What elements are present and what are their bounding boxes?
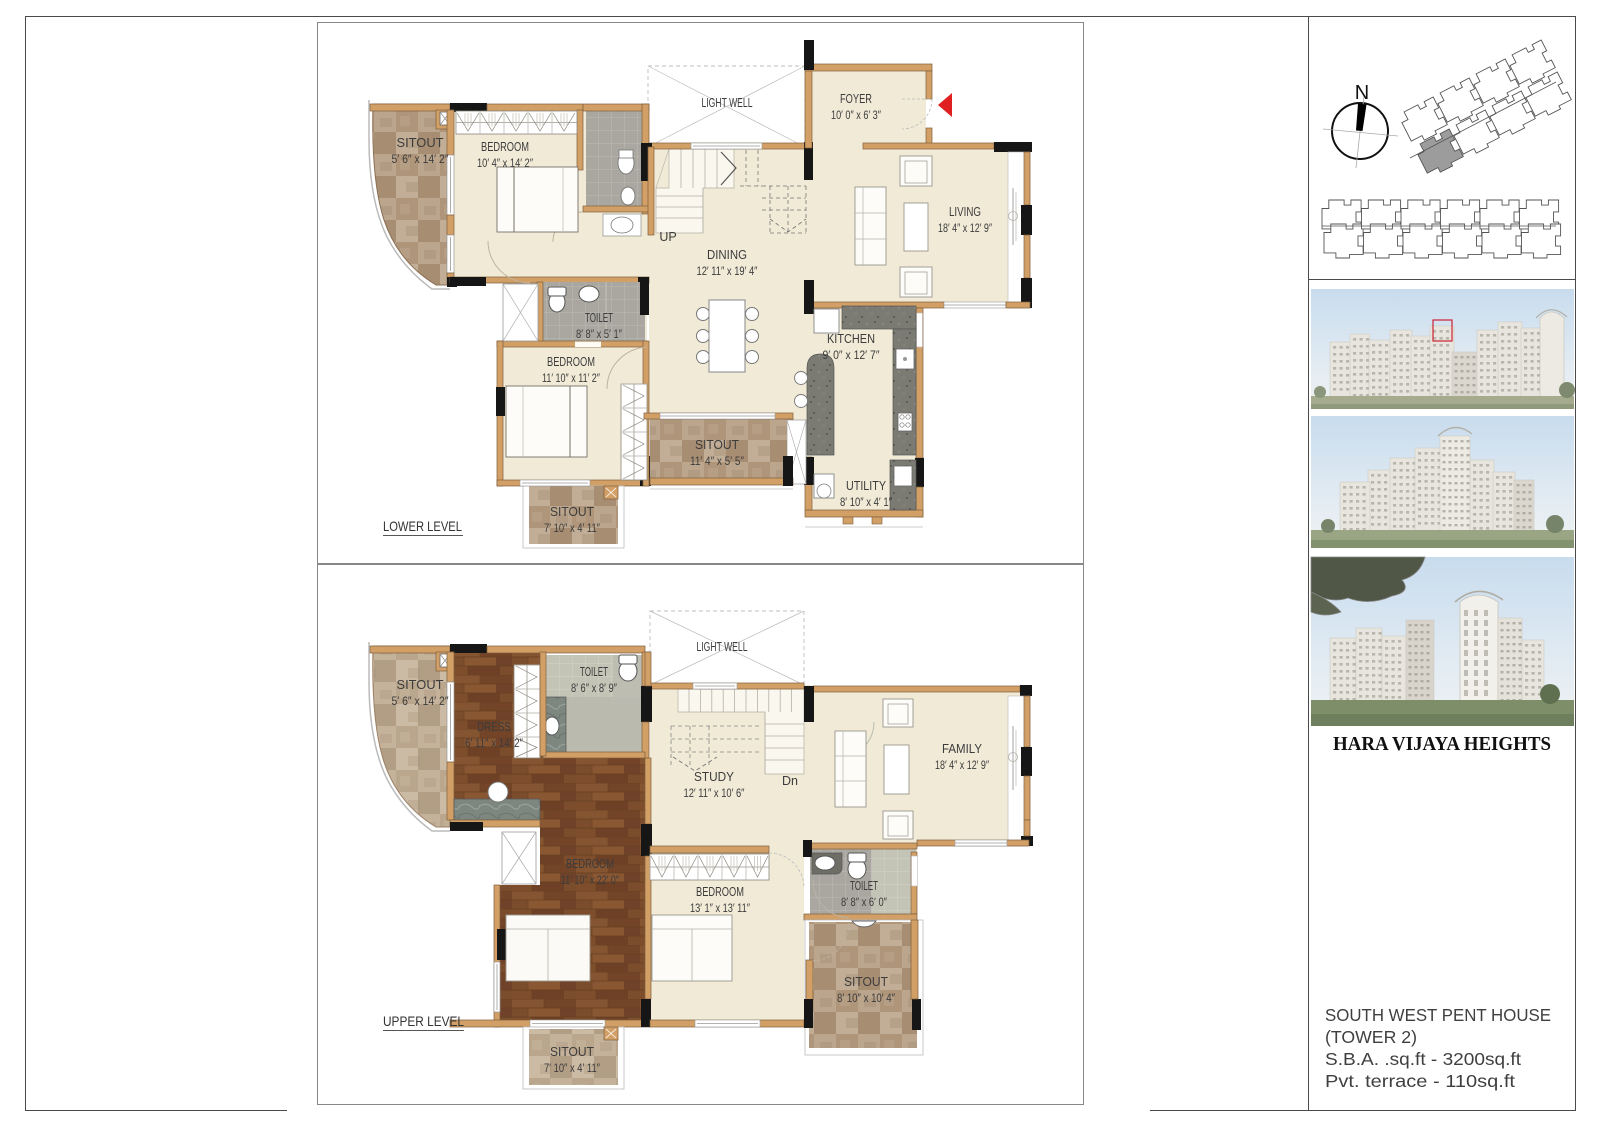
svg-text:12′ 11″ x 19′ 4″: 12′ 11″ x 19′ 4″: [697, 264, 759, 278]
svg-text:STUDY: STUDY: [694, 769, 734, 784]
svg-text:7′ 10″ x 4′ 11″: 7′ 10″ x 4′ 11″: [544, 521, 601, 535]
svg-text:18′ 4″ x 12′ 9″: 18′ 4″ x 12′ 9″: [938, 221, 993, 235]
svg-text:BEDROOM: BEDROOM: [547, 354, 595, 369]
svg-text:13′ 1″ x 13′ 11″: 13′ 1″ x 13′ 11″: [690, 901, 751, 915]
svg-text:11′ 4″ x 5′ 5″: 11′ 4″ x 5′ 5″: [690, 454, 745, 468]
svg-text:LIVING: LIVING: [949, 204, 981, 219]
svg-text:UPPER LEVEL: UPPER LEVEL: [383, 1013, 464, 1029]
svg-text:5′ 6″ x 14′ 2″: 5′ 6″ x 14′ 2″: [392, 152, 450, 166]
svg-text:SITOUT: SITOUT: [397, 677, 444, 692]
svg-text:UTILITY: UTILITY: [846, 478, 886, 493]
svg-text:SITOUT: SITOUT: [397, 135, 444, 150]
svg-text:LIGHT WELL: LIGHT WELL: [702, 96, 753, 110]
svg-text:TOILET: TOILET: [585, 310, 613, 325]
svg-text:11′ 10″ x 22′ 0″: 11′ 10″ x 22′ 0″: [561, 873, 620, 887]
svg-text:BEDROOM: BEDROOM: [566, 856, 614, 871]
svg-text:Dn: Dn: [782, 774, 798, 788]
svg-text:11′ 10″ x 11′ 2″: 11′ 10″ x 11′ 2″: [542, 371, 601, 385]
svg-text:TOILET: TOILET: [850, 878, 878, 893]
svg-text:10′ 0″ x 6′ 3″: 10′ 0″ x 6′ 3″: [831, 108, 882, 122]
svg-text:18′ 4″ x 12′ 9″: 18′ 4″ x 12′ 9″: [935, 758, 990, 772]
svg-text:KITCHEN: KITCHEN: [827, 331, 875, 346]
svg-text:8′ 8″ x 6′ 0″: 8′ 8″ x 6′ 0″: [841, 895, 888, 909]
svg-text:8′ 10″ x 10′ 4″: 8′ 10″ x 10′ 4″: [837, 991, 896, 1005]
svg-text:N: N: [1355, 82, 1369, 104]
svg-text:SITOUT: SITOUT: [550, 1044, 594, 1059]
svg-text:8′ 6″ x 8′ 9″: 8′ 6″ x 8′ 9″: [571, 681, 618, 695]
svg-text:SITOUT: SITOUT: [550, 504, 594, 519]
svg-text:UP: UP: [659, 230, 676, 244]
svg-text:Pvt. terrace - 110sq.ft: Pvt. terrace - 110sq.ft: [1325, 1071, 1515, 1091]
svg-text:S.B.A. .sq.ft - 3200sq.ft: S.B.A. .sq.ft - 3200sq.ft: [1325, 1049, 1521, 1069]
svg-text:SOUTH WEST PENT HOUSE: SOUTH WEST PENT HOUSE: [1325, 1005, 1551, 1025]
svg-text:8′ 10″ x 4′ 1″: 8′ 10″ x 4′ 1″: [840, 495, 893, 509]
svg-text:12′ 11″ x 10′ 6″: 12′ 11″ x 10′ 6″: [684, 786, 746, 800]
svg-text:TOILET: TOILET: [580, 664, 608, 679]
svg-text:FAMILY: FAMILY: [942, 741, 982, 756]
svg-text:5′ 6″ x 14′ 2″: 5′ 6″ x 14′ 2″: [392, 694, 450, 708]
svg-text:BEDROOM: BEDROOM: [696, 884, 744, 899]
svg-text:DINING: DINING: [707, 247, 747, 262]
svg-text:LIGHT WELL: LIGHT WELL: [697, 640, 748, 654]
svg-text:FOYER: FOYER: [840, 91, 872, 106]
svg-text:SITOUT: SITOUT: [844, 974, 888, 989]
svg-text:6′ 11″ x 14′ 2″: 6′ 11″ x 14′ 2″: [465, 736, 524, 750]
svg-text:DRESS: DRESS: [477, 719, 511, 734]
svg-text:9′ 0″ x 12′ 7″: 9′ 0″ x 12′ 7″: [823, 348, 881, 362]
svg-text:BEDROOM: BEDROOM: [481, 139, 529, 154]
svg-text:8′ 8″ x 5′ 1″: 8′ 8″ x 5′ 1″: [576, 327, 623, 341]
svg-text:LOWER LEVEL: LOWER LEVEL: [383, 518, 462, 534]
svg-text:HARA VIJAYA HEIGHTS: HARA VIJAYA HEIGHTS: [1333, 733, 1551, 755]
svg-text:SITOUT: SITOUT: [695, 437, 739, 452]
svg-text:(TOWER 2): (TOWER 2): [1325, 1027, 1417, 1047]
svg-text:7′ 10″ x 4′ 11″: 7′ 10″ x 4′ 11″: [544, 1061, 601, 1075]
svg-text:10′ 4″ x 14′ 2″: 10′ 4″ x 14′ 2″: [477, 156, 534, 170]
